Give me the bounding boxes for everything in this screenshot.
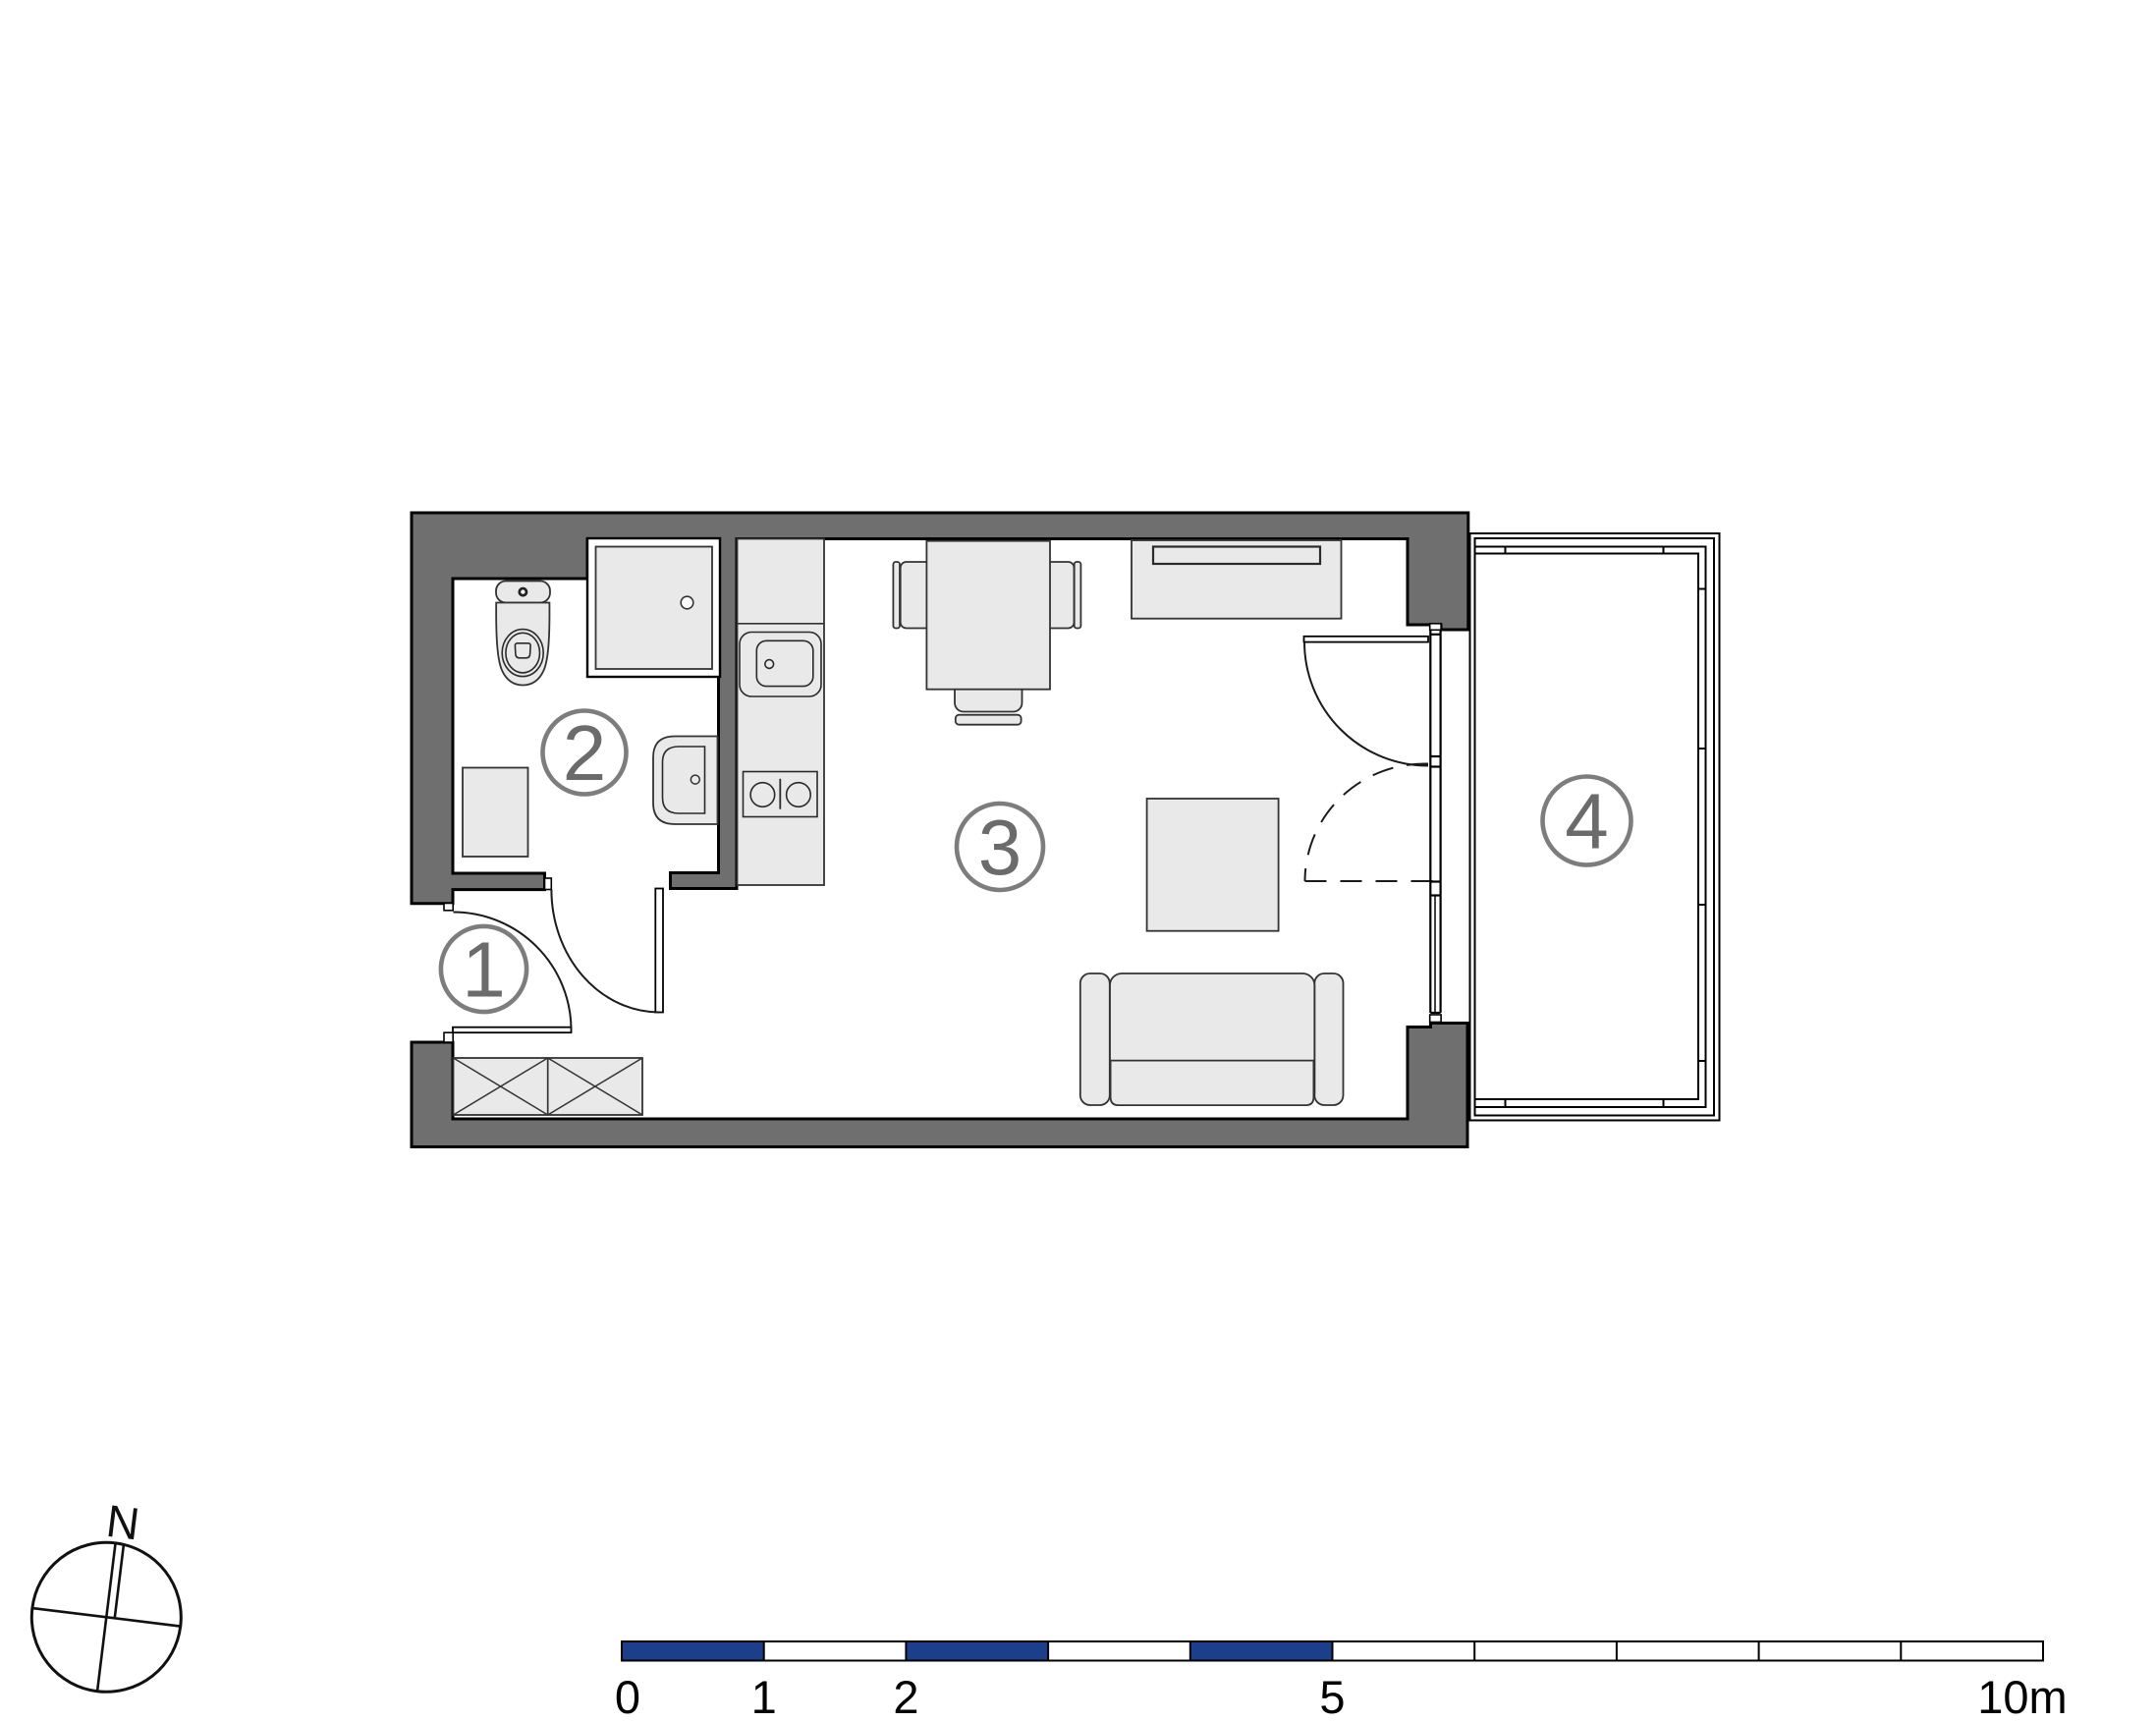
- svg-text:10m: 10m: [1977, 1671, 2067, 1722]
- svg-text:0: 0: [615, 1671, 640, 1722]
- svg-text:N: N: [104, 1495, 142, 1550]
- svg-text:2: 2: [563, 709, 607, 797]
- svg-text:3: 3: [978, 804, 1023, 891]
- svg-text:5: 5: [1319, 1671, 1345, 1722]
- svg-text:1: 1: [462, 926, 506, 1014]
- svg-text:2: 2: [893, 1671, 918, 1722]
- svg-text:4: 4: [1565, 778, 1609, 865]
- svg-text:1: 1: [751, 1671, 777, 1722]
